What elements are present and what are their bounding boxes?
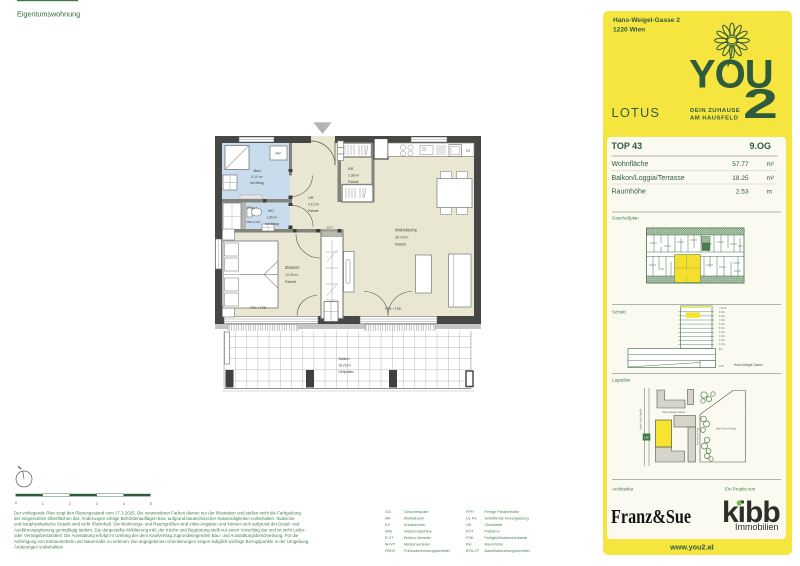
svg-text:Architektur: Architektur bbox=[612, 487, 634, 492]
svg-text:3: 3 bbox=[96, 502, 98, 506]
svg-text:Maria-Tusch-Straße: Maria-Tusch-Straße bbox=[640, 408, 643, 430]
svg-text:5.OG: 5.OG bbox=[719, 327, 725, 330]
svg-text:ker.Belag: ker.Belag bbox=[250, 181, 264, 185]
svg-text:Ein Projekt von: Ein Projekt von bbox=[725, 487, 756, 492]
svg-text:U2: U2 bbox=[644, 436, 648, 440]
svg-text:13.76 m²: 13.76 m² bbox=[285, 273, 299, 277]
svg-text:0: 0 bbox=[15, 501, 17, 505]
svg-text:Parkett: Parkett bbox=[348, 180, 359, 184]
svg-text:Zimmer: Zimmer bbox=[285, 265, 300, 270]
svg-text:Oberkante: Oberkante bbox=[485, 523, 503, 527]
svg-text:Kühlschrank: Kühlschrank bbox=[404, 523, 425, 527]
svg-text:AW: AW bbox=[275, 152, 281, 156]
svg-text:+31.15: +31.15 bbox=[719, 307, 727, 310]
svg-text:TOP 43: TOP 43 bbox=[612, 141, 643, 151]
svg-text:Gehplatten: Gehplatten bbox=[339, 370, 355, 374]
svg-text:EG: EG bbox=[719, 348, 723, 351]
svg-text:Hans-Weigel-Gasse 2: Hans-Weigel-Gasse 2 bbox=[613, 17, 680, 24]
svg-text:Ø54/VT: Ø54/VT bbox=[247, 206, 258, 210]
svg-text:Putbeton: Putbeton bbox=[485, 530, 500, 534]
svg-text:2.53: 2.53 bbox=[736, 188, 749, 195]
svg-text:AR: AR bbox=[385, 517, 391, 521]
svg-text:Balkon: Balkon bbox=[339, 357, 350, 361]
svg-text:Wohnküche: Wohnküche bbox=[395, 228, 418, 233]
svg-text:Raumhöhe: Raumhöhe bbox=[485, 543, 504, 547]
svg-text:8.OG: 8.OG bbox=[719, 315, 725, 318]
svg-text:AM HAUSFELD: AM HAUSFELD bbox=[690, 116, 738, 122]
svg-text:Fußbodenheizungsverteiler: Fußbodenheizungsverteiler bbox=[404, 549, 451, 553]
svg-text:Parkett: Parkett bbox=[285, 280, 296, 284]
svg-text:m²: m² bbox=[767, 161, 775, 168]
svg-text:Parkett: Parkett bbox=[308, 209, 319, 213]
svg-text:KBH=2.08: KBH=2.08 bbox=[246, 220, 260, 224]
svg-text:UL Fix: UL Fix bbox=[466, 517, 477, 521]
svg-text:ker.Belag: ker.Belag bbox=[265, 222, 279, 226]
svg-text:2.38 m²: 2.38 m² bbox=[348, 174, 360, 178]
svg-text:7.OG: 7.OG bbox=[719, 319, 725, 322]
svg-text:und bauphysikalische Details s: und bauphysikalische Details sind nicht … bbox=[14, 522, 300, 527]
svg-text:Eigentumswohnung: Eigentumswohnung bbox=[17, 10, 80, 19]
svg-text:3.OG: 3.OG bbox=[719, 335, 725, 338]
svg-text:Parkett: Parkett bbox=[395, 243, 406, 247]
svg-text:Geschoßplan: Geschoßplan bbox=[612, 216, 639, 221]
svg-text:6.OG: 6.OG bbox=[719, 323, 725, 326]
svg-text:FBHV: FBHV bbox=[385, 549, 396, 553]
svg-text:M+VT: M+VT bbox=[385, 543, 396, 547]
svg-text:Abstellraum: Abstellraum bbox=[404, 517, 424, 521]
svg-text:E-VT: E-VT bbox=[385, 536, 394, 540]
svg-text:M+T: M+T bbox=[327, 226, 333, 230]
svg-text:28.73 m²: 28.73 m² bbox=[395, 236, 409, 240]
svg-text:18.25: 18.25 bbox=[732, 175, 749, 182]
svg-text:Lageplan: Lageplan bbox=[612, 378, 631, 383]
svg-text:FOK: FOK bbox=[466, 536, 474, 540]
svg-text:KS: KS bbox=[385, 523, 391, 527]
svg-text:LOTUS: LOTUS bbox=[612, 105, 661, 120]
svg-text:0.00: 0.00 bbox=[719, 365, 724, 368]
svg-text:Fertigfußbodenoberkante: Fertigfußbodenoberkante bbox=[485, 536, 528, 540]
svg-text:WC: WC bbox=[268, 209, 275, 213]
svg-text:WM: WM bbox=[385, 530, 392, 534]
svg-text:OK: OK bbox=[466, 523, 472, 527]
svg-text:m: m bbox=[767, 188, 772, 195]
svg-text:5.10 m²: 5.10 m² bbox=[251, 175, 263, 179]
svg-text:oder Vertragsbestandteil. Die: oder Vertragsbestandteil. Die Ausstattun… bbox=[14, 533, 299, 538]
svg-text:1220 Wien: 1220 Wien bbox=[613, 27, 645, 34]
svg-text:FPN + FOK: FPN + FOK bbox=[385, 307, 402, 311]
svg-text:BTA-VT: BTA-VT bbox=[466, 549, 480, 553]
svg-text:RH: RH bbox=[466, 543, 472, 547]
svg-text:2: 2 bbox=[69, 502, 71, 506]
svg-text:Der vorliegende Plan zeigt den: Der vorliegende Plan zeigt den Planungss… bbox=[14, 510, 301, 515]
svg-text:Ausführungsplanung geringfügig: Ausführungsplanung geringfügig ändern. D… bbox=[14, 527, 306, 532]
svg-text:KS: KS bbox=[466, 149, 470, 153]
svg-text:Wohnfläche: Wohnfläche bbox=[612, 161, 649, 168]
svg-text:Geschirrspüler: Geschirrspüler bbox=[404, 510, 429, 514]
svg-text:2: 2 bbox=[743, 80, 778, 127]
svg-text:GG: GG bbox=[385, 510, 391, 514]
svg-text:4.OG: 4.OG bbox=[719, 331, 725, 334]
svg-text:4: 4 bbox=[123, 502, 125, 506]
svg-text:Umlüftende Fixverglasung: Umlüftende Fixverglasung bbox=[485, 517, 529, 521]
svg-text:Bad: Bad bbox=[253, 168, 260, 173]
svg-text:Schnitt: Schnitt bbox=[612, 310, 627, 315]
svg-text:DEIN ZUHAUSE: DEIN ZUHAUSE bbox=[690, 108, 740, 114]
svg-text:4.12 m²: 4.12 m² bbox=[308, 203, 320, 207]
svg-text:57.77: 57.77 bbox=[732, 161, 749, 168]
svg-text:9.OG: 9.OG bbox=[749, 141, 771, 151]
svg-text:AR: AR bbox=[348, 166, 354, 171]
svg-text:9.OG: 9.OG bbox=[719, 311, 725, 314]
svg-text:FPH: FPH bbox=[466, 510, 474, 514]
svg-text:1.66 m²: 1.66 m² bbox=[267, 216, 278, 220]
svg-text:Änderungen vorbehalten!: Änderungen vorbehalten! bbox=[14, 545, 63, 550]
svg-text:der eingesetzten Oberflächen d: der eingesetzten Oberflächen dar. Änderu… bbox=[14, 516, 295, 521]
svg-text:Waschmaschine: Waschmaschine bbox=[404, 530, 432, 534]
svg-text:Elektro-Verteiler: Elektro-Verteiler bbox=[404, 536, 432, 540]
svg-text:POT: POT bbox=[466, 530, 474, 534]
svg-text:Medienverteiler: Medienverteiler bbox=[404, 543, 431, 547]
svg-text:Bauteilaktivierungsverteiler: Bauteilaktivierungsverteiler bbox=[485, 549, 531, 553]
svg-text:1.OG: 1.OG bbox=[719, 343, 725, 346]
svg-text:Balkon/Loggia/Terrasse: Balkon/Loggia/Terrasse bbox=[612, 175, 685, 182]
svg-text:Fertige Parapethöhe: Fertige Parapethöhe bbox=[485, 510, 520, 514]
svg-text:m²: m² bbox=[767, 175, 775, 182]
svg-text:5: 5 bbox=[150, 502, 152, 506]
svg-text:Raumhöhe: Raumhöhe bbox=[612, 188, 646, 195]
svg-text:Franz&Sue: Franz&Sue bbox=[611, 505, 691, 527]
svg-text:18.25 m²: 18.25 m² bbox=[339, 364, 352, 368]
svg-text:Anfertigung von Einbaumöbeln u: Anfertigung von Einbaumöbeln und Naturma… bbox=[14, 539, 310, 544]
svg-text:Immobilien: Immobilien bbox=[735, 522, 779, 532]
svg-text:Hans-Weigel-Gasse: Hans-Weigel-Gasse bbox=[734, 363, 763, 367]
svg-text:FPN + FOK: FPN + FOK bbox=[250, 306, 267, 310]
svg-text:Am-Schulz-Park: Am-Schulz-Park bbox=[697, 427, 700, 445]
svg-text:2.OG: 2.OG bbox=[719, 339, 725, 342]
svg-text:Mari-Schulz-Weg: Mari-Schulz-Weg bbox=[716, 427, 736, 431]
svg-text:VR: VR bbox=[308, 195, 314, 200]
svg-text:Hans-Weigel-Gasse: Hans-Weigel-Gasse bbox=[662, 410, 686, 414]
svg-text:1: 1 bbox=[42, 502, 44, 506]
svg-text:www.you2.at: www.you2.at bbox=[669, 543, 714, 552]
